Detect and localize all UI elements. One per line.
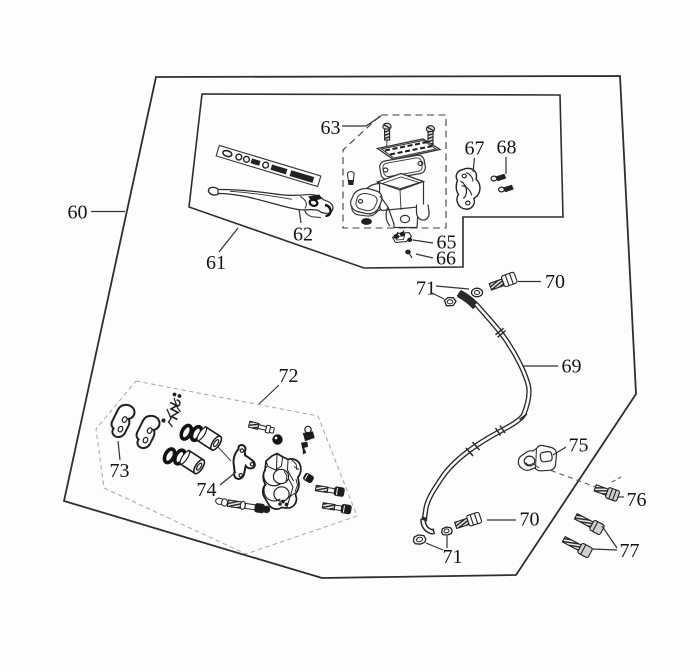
svg-text:69: 69 xyxy=(562,356,582,378)
svg-text:63: 63 xyxy=(321,117,341,139)
svg-text:70: 70 xyxy=(545,271,565,293)
svg-text:71: 71 xyxy=(416,278,436,300)
svg-text:68: 68 xyxy=(497,137,517,159)
svg-text:70: 70 xyxy=(520,509,540,531)
svg-text:77: 77 xyxy=(620,540,640,562)
svg-text:60: 60 xyxy=(68,202,88,224)
svg-text:62: 62 xyxy=(293,224,313,246)
svg-text:71: 71 xyxy=(443,546,463,568)
svg-text:73: 73 xyxy=(110,460,130,482)
svg-text:75: 75 xyxy=(569,435,589,457)
svg-text:76: 76 xyxy=(627,489,647,511)
svg-text:66: 66 xyxy=(436,248,456,270)
svg-text:72: 72 xyxy=(279,365,299,387)
svg-text:67: 67 xyxy=(465,138,485,160)
svg-text:61: 61 xyxy=(206,252,226,274)
svg-text:74: 74 xyxy=(197,479,217,501)
